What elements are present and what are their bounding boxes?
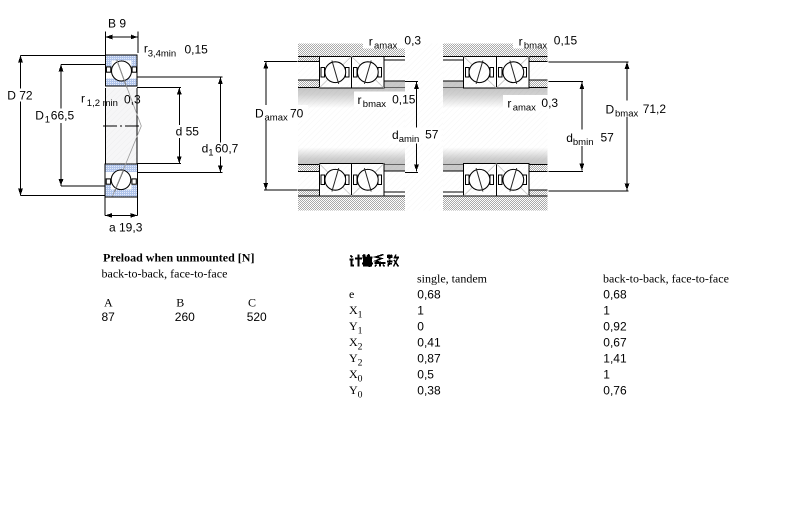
svg-text:D: D <box>35 109 44 123</box>
svg-text:Preload when unmounted [N]: Preload when unmounted [N] <box>103 251 254 265</box>
svg-text:60,7: 60,7 <box>215 142 239 156</box>
svg-text:bmax: bmax <box>363 99 386 110</box>
svg-text:0,87: 0,87 <box>417 352 441 366</box>
svg-text:amax: amax <box>374 41 397 52</box>
svg-text:1: 1 <box>603 304 610 318</box>
svg-text:0,15: 0,15 <box>554 34 578 48</box>
svg-text:B 9: B 9 <box>108 17 126 31</box>
svg-text:0,68: 0,68 <box>603 288 627 302</box>
svg-text:amax: amax <box>265 113 288 124</box>
svg-text:3,4min: 3,4min <box>148 49 177 60</box>
svg-text:r: r <box>369 35 373 49</box>
svg-text:66,5: 66,5 <box>51 109 75 123</box>
svg-text:87: 87 <box>102 310 116 324</box>
svg-text:0,76: 0,76 <box>603 384 627 398</box>
svg-text:amin: amin <box>399 134 420 145</box>
svg-text:a 19,3: a 19,3 <box>109 221 143 235</box>
svg-text:1: 1 <box>208 148 213 159</box>
svg-text:1: 1 <box>417 304 424 318</box>
svg-text:C: C <box>248 296 256 310</box>
svg-text:0,5: 0,5 <box>417 368 434 382</box>
svg-text:1: 1 <box>603 368 610 382</box>
svg-text:A: A <box>104 296 113 310</box>
svg-text:D: D <box>606 103 615 117</box>
svg-text:D 72: D 72 <box>7 89 33 103</box>
svg-text:57: 57 <box>601 131 615 145</box>
svg-text:0: 0 <box>417 320 424 334</box>
svg-text:0,67: 0,67 <box>603 336 627 350</box>
svg-text:bmin: bmin <box>573 137 594 148</box>
svg-text:d 55: d 55 <box>176 124 200 138</box>
svg-text:57: 57 <box>425 128 439 142</box>
svg-text:d: d <box>202 142 209 156</box>
svg-text:r: r <box>81 92 85 106</box>
svg-text:0,3: 0,3 <box>541 96 558 110</box>
svg-text:D: D <box>255 107 264 121</box>
svg-text:back-to-back, face-to-face: back-to-back, face-to-face <box>603 272 729 286</box>
svg-text:single, tandem: single, tandem <box>417 272 488 286</box>
svg-text:B: B <box>176 296 184 310</box>
svg-text:0,15: 0,15 <box>392 93 416 107</box>
svg-text:70: 70 <box>290 107 304 121</box>
svg-text:bmax: bmax <box>524 41 547 52</box>
svg-text:260: 260 <box>175 310 195 324</box>
svg-text:0,41: 0,41 <box>417 336 441 350</box>
svg-text:r: r <box>358 93 362 107</box>
svg-text:e: e <box>349 287 354 301</box>
svg-text:r: r <box>519 35 523 49</box>
svg-text:0,92: 0,92 <box>603 320 627 334</box>
svg-text:bmax: bmax <box>615 109 638 120</box>
svg-text:back-to-back, face-to-face: back-to-back, face-to-face <box>102 267 228 281</box>
svg-text:0,3: 0,3 <box>124 93 141 107</box>
svg-text:0,3: 0,3 <box>404 34 421 48</box>
svg-text:1: 1 <box>45 115 50 126</box>
svg-text:520: 520 <box>247 310 267 324</box>
svg-text:0,68: 0,68 <box>417 288 441 302</box>
svg-text:amax: amax <box>513 103 536 114</box>
svg-text:0,38: 0,38 <box>417 384 441 398</box>
svg-text:1,41: 1,41 <box>603 352 627 366</box>
svg-text:1,2 min: 1,2 min <box>87 98 118 109</box>
svg-text:d: d <box>566 131 573 145</box>
svg-text:0,15: 0,15 <box>185 43 209 57</box>
svg-text:r: r <box>507 97 511 111</box>
svg-text:d: d <box>392 128 399 142</box>
svg-text:71,2: 71,2 <box>643 102 667 116</box>
